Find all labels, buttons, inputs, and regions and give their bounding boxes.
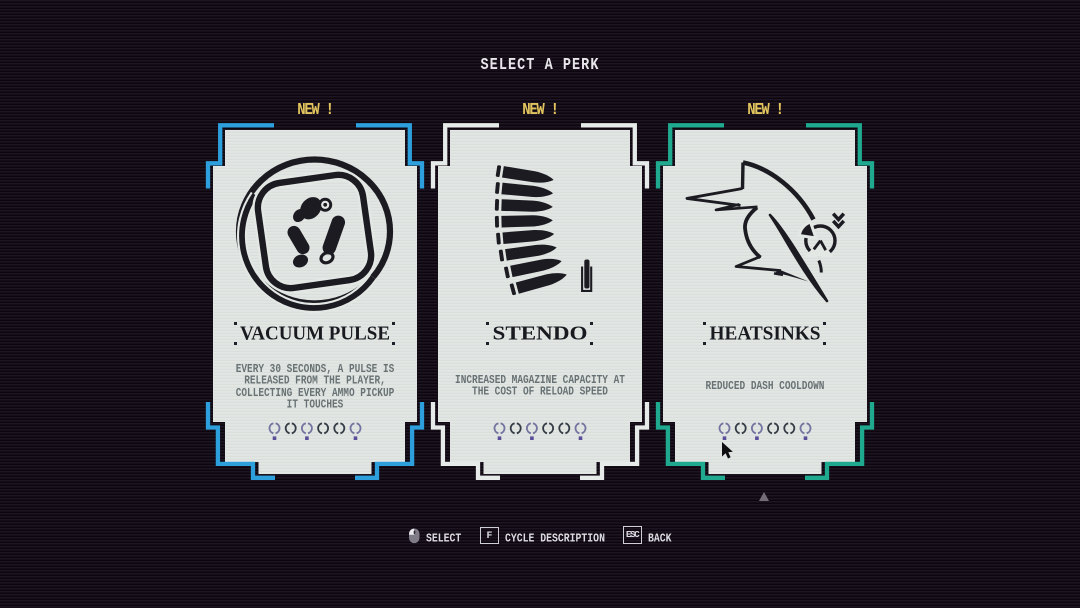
svg-text:STENDO: STENDO (493, 323, 588, 345)
svg-text:VACUUM PULSE: VACUUM PULSE (240, 323, 390, 345)
svg-text:HEATSINKS: HEATSINKS (710, 323, 821, 345)
